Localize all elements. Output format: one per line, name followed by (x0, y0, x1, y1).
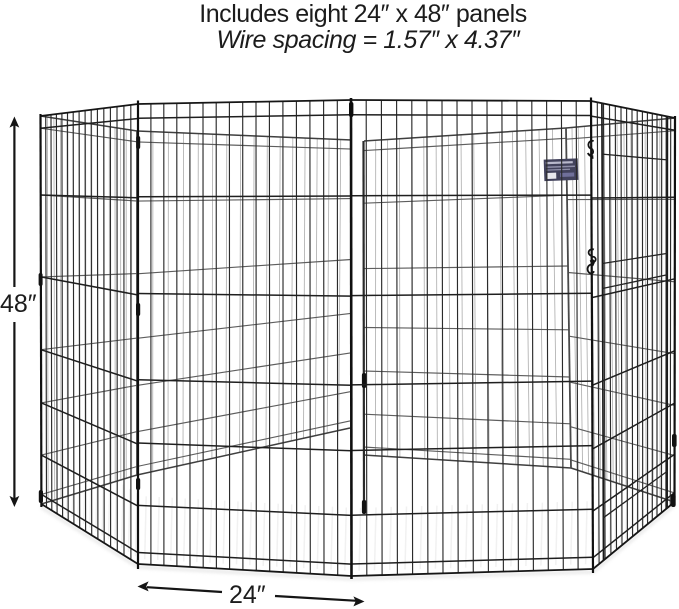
svg-text:24″: 24″ (229, 581, 266, 609)
svg-text:48″: 48″ (0, 290, 37, 318)
